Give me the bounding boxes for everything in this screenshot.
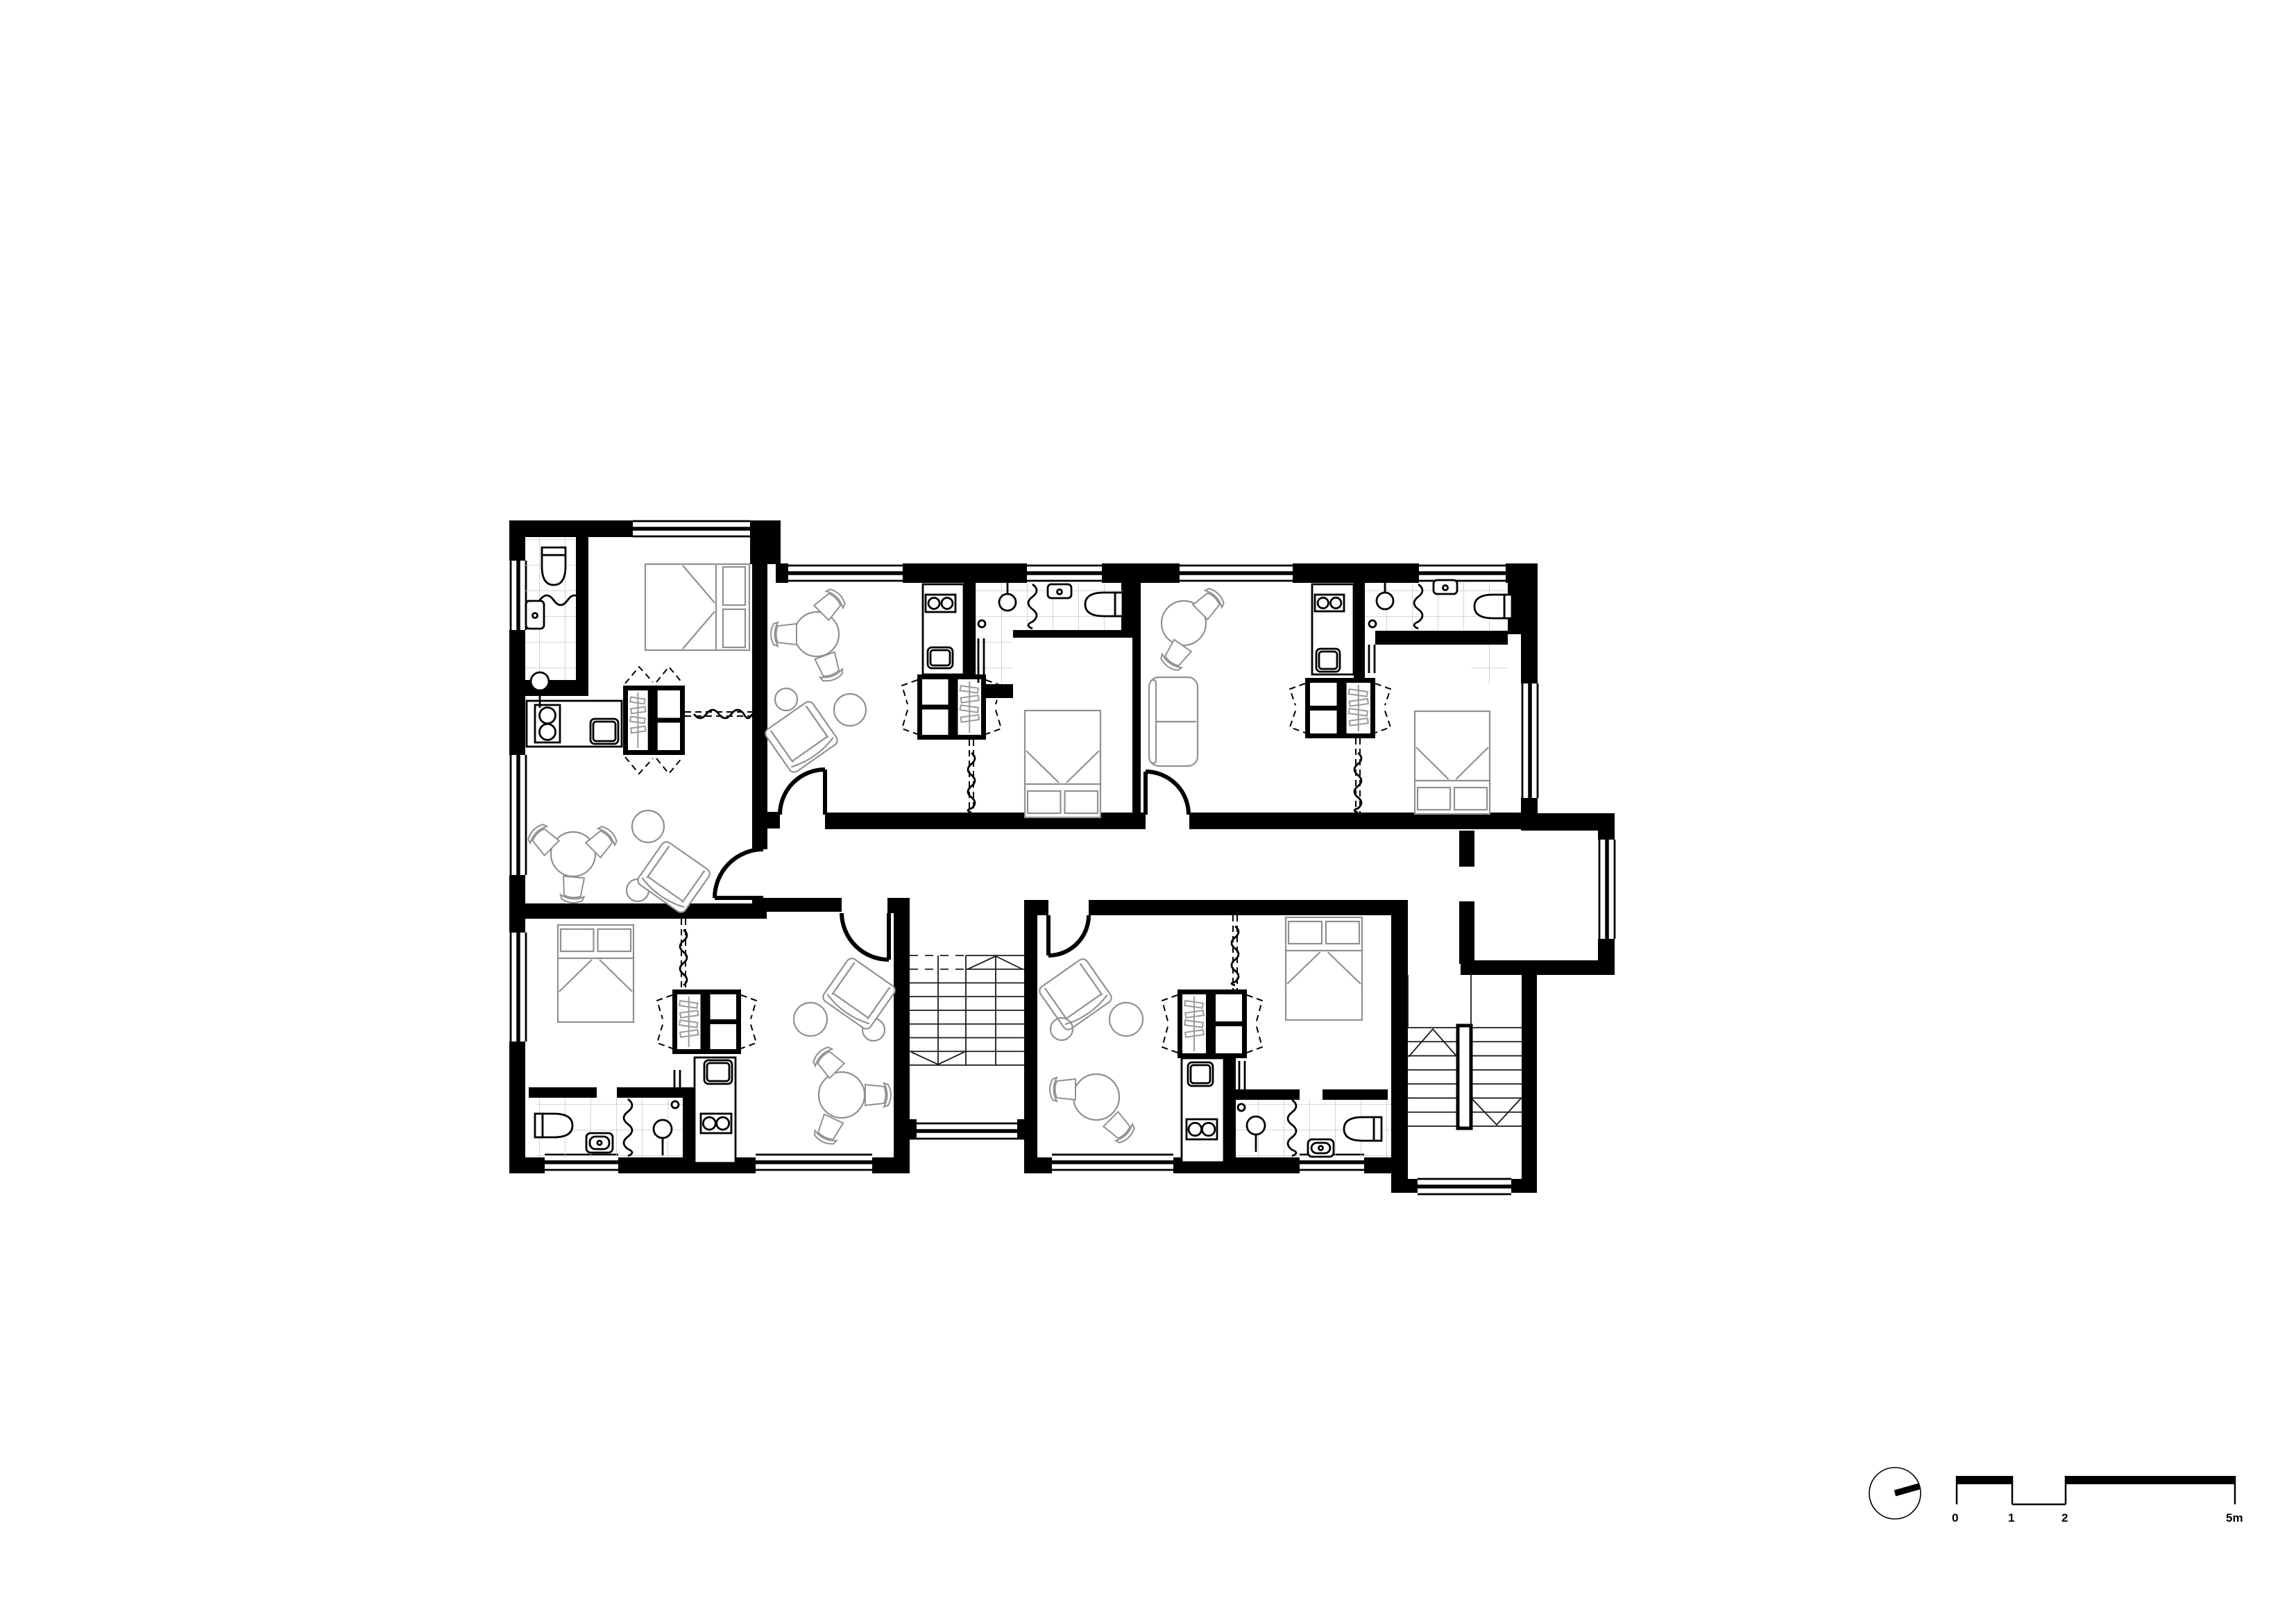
svg-text:5m: 5m xyxy=(2226,1511,2243,1524)
svg-text:1: 1 xyxy=(2008,1511,2014,1524)
svg-text:2: 2 xyxy=(2061,1511,2068,1524)
svg-text:0: 0 xyxy=(1952,1511,1958,1524)
